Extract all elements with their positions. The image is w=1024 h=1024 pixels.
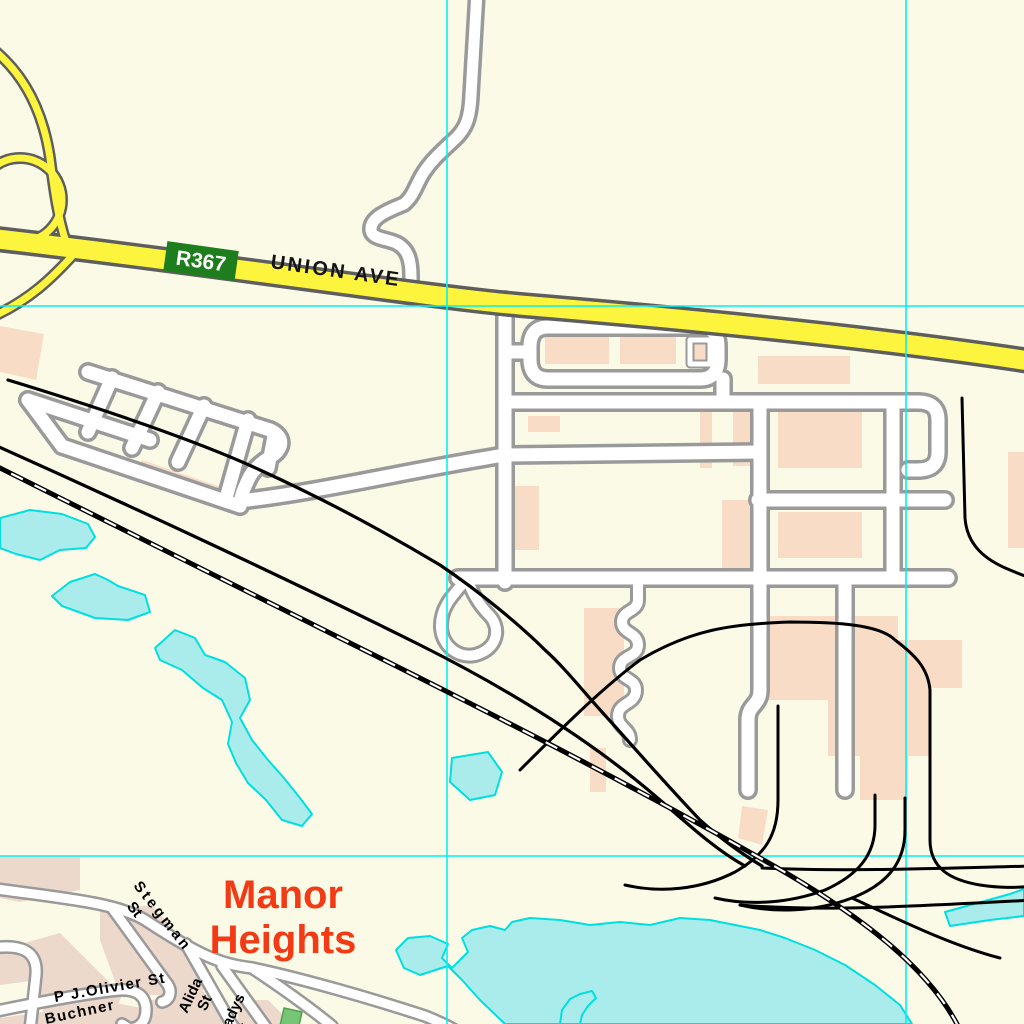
building: [620, 336, 676, 364]
suburb-label-line1: Manor: [223, 873, 343, 917]
map-canvas[interactable]: R367 UNION AVE Manor Heights Stegman St …: [0, 0, 1024, 1024]
building: [758, 356, 850, 384]
building: [778, 408, 862, 468]
building: [513, 486, 539, 550]
building: [1008, 452, 1024, 548]
suburb-label-line2: Heights: [210, 918, 357, 962]
building: [528, 416, 560, 432]
map-viewport: R367 UNION AVE Manor Heights Stegman St …: [0, 0, 1024, 1024]
building: [0, 326, 44, 380]
building: [778, 512, 862, 558]
building: [545, 336, 609, 364]
road-segment: [268, 436, 274, 468]
